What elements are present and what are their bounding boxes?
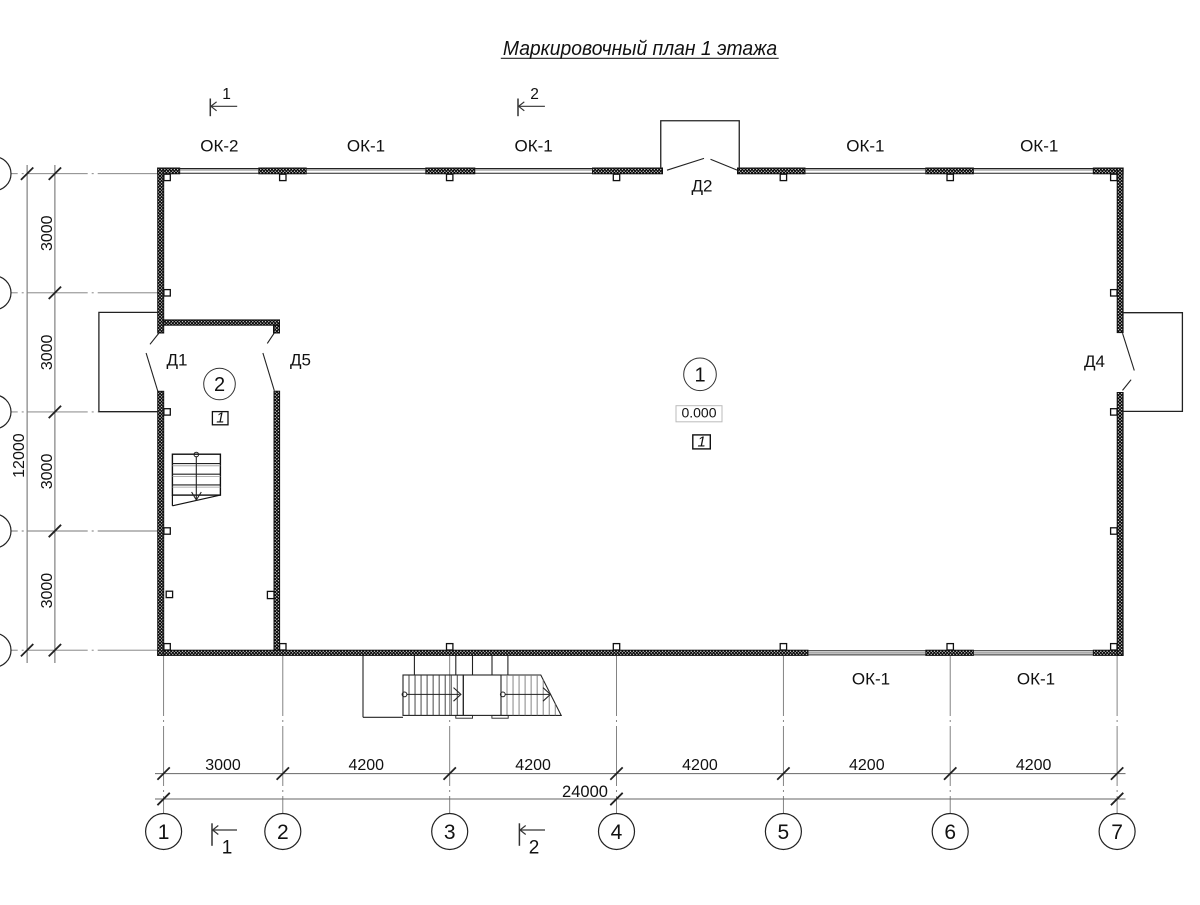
svg-text:4200: 4200 — [682, 757, 718, 774]
svg-text:ОК-1: ОК-1 — [1017, 670, 1055, 689]
svg-text:3: 3 — [444, 821, 456, 844]
svg-text:Д2: Д2 — [692, 176, 713, 195]
svg-text:ОК-1: ОК-1 — [852, 670, 890, 689]
svg-text:1: 1 — [222, 838, 233, 859]
svg-text:7: 7 — [1111, 821, 1123, 844]
svg-text:24000: 24000 — [562, 783, 608, 801]
svg-text:ОК-1: ОК-1 — [347, 137, 385, 156]
svg-text:2: 2 — [530, 86, 539, 103]
svg-text:ОК-1: ОК-1 — [514, 137, 552, 156]
svg-text:2: 2 — [277, 821, 289, 844]
svg-text:4200: 4200 — [1016, 757, 1052, 774]
svg-text:3000: 3000 — [39, 215, 56, 251]
svg-text:1: 1 — [698, 433, 706, 450]
svg-text:1: 1 — [158, 821, 170, 844]
svg-text:3000: 3000 — [205, 757, 241, 774]
svg-text:1: 1 — [216, 409, 224, 426]
svg-text:2: 2 — [529, 838, 540, 859]
svg-text:3000: 3000 — [39, 573, 56, 609]
svg-text:6: 6 — [944, 821, 956, 844]
svg-text:2: 2 — [214, 374, 225, 396]
svg-text:0.000: 0.000 — [681, 405, 716, 421]
svg-text:4: 4 — [611, 821, 623, 844]
svg-text:3000: 3000 — [39, 454, 56, 490]
svg-text:Маркировочный план 1 этажа: Маркировочный план 1 этажа — [503, 38, 777, 60]
svg-text:4200: 4200 — [849, 757, 885, 774]
svg-text:3000: 3000 — [39, 334, 56, 370]
svg-text:ОК-1: ОК-1 — [1020, 137, 1058, 156]
svg-text:4200: 4200 — [515, 757, 551, 774]
svg-text:Д5: Д5 — [290, 351, 311, 370]
svg-text:1: 1 — [222, 86, 231, 103]
svg-text:1: 1 — [694, 364, 705, 386]
svg-text:4200: 4200 — [348, 757, 384, 774]
svg-text:Д4: Д4 — [1084, 352, 1105, 371]
svg-text:Д1: Д1 — [167, 351, 188, 370]
svg-text:5: 5 — [778, 821, 790, 844]
svg-text:12000: 12000 — [11, 433, 28, 478]
svg-text:ОК-1: ОК-1 — [846, 137, 884, 156]
svg-text:ОК-2: ОК-2 — [200, 137, 238, 156]
